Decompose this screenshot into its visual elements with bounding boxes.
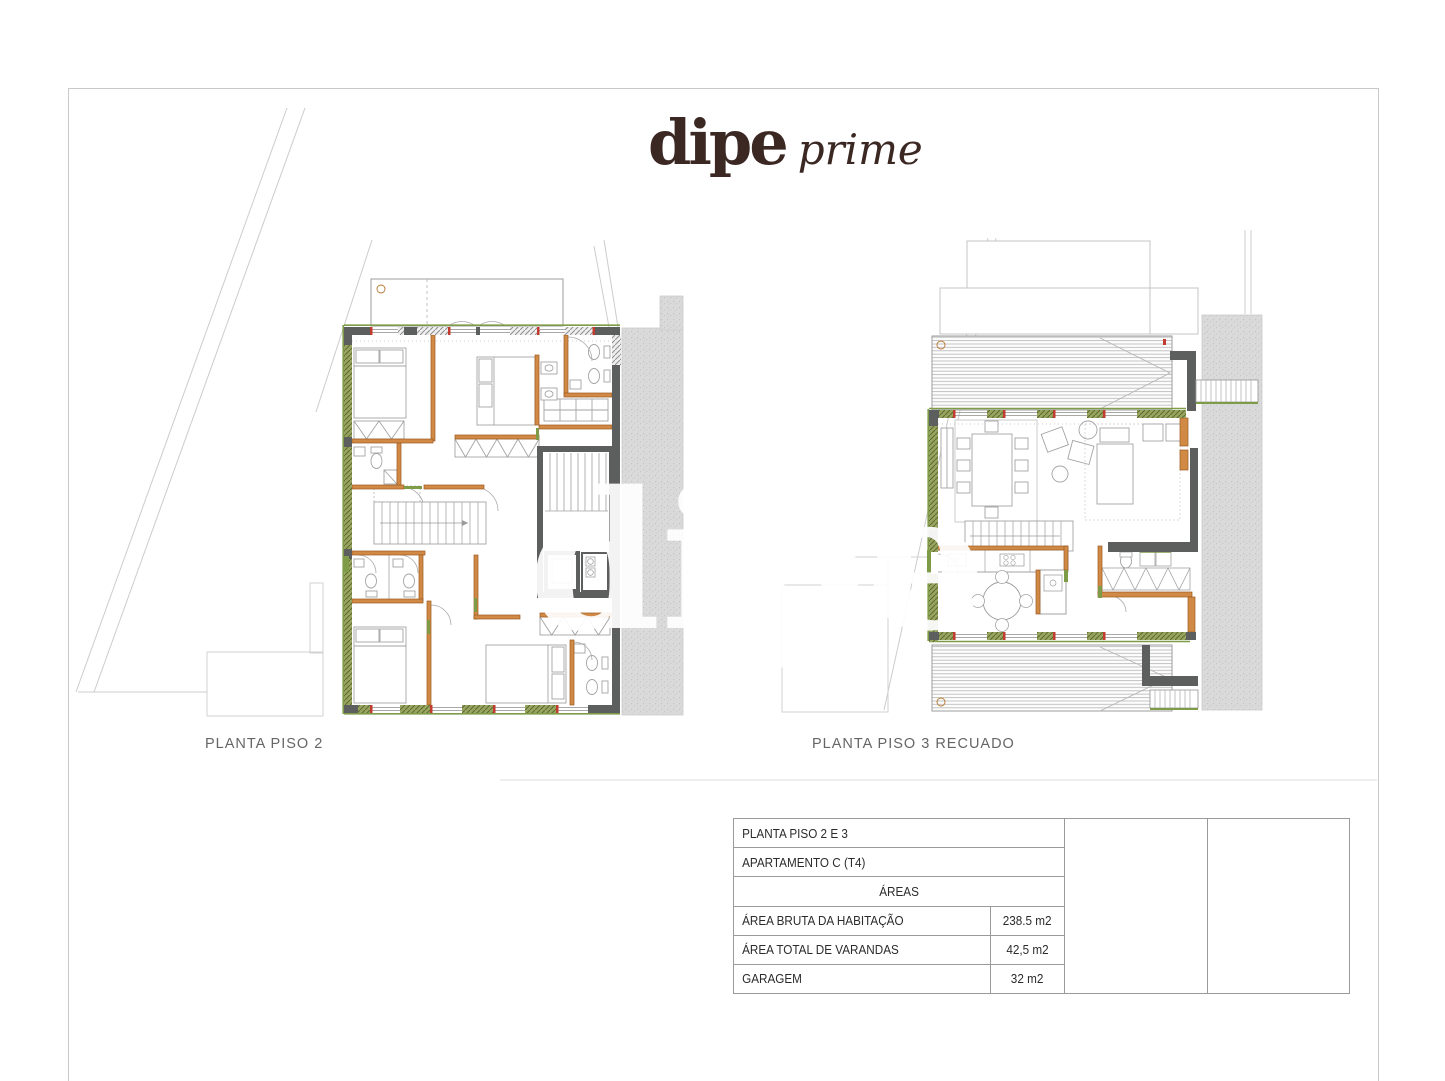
plan-label-piso-3-recuado: PLANTA PISO 3 RECUADO: [812, 736, 1015, 752]
internal-stair-piso-2: [374, 486, 486, 544]
title-block-row-plan: PLANTA PISO 2 E 3: [734, 819, 1064, 848]
title-block: PLANTA PISO 2 E 3 APARTAMENTO C (T4) ÁRE…: [733, 818, 1350, 994]
title-block-row-areas-header: ÁREAS: [734, 877, 1064, 906]
apartment-cell: APARTAMENTO C (T4): [734, 855, 865, 870]
title-block-row-balcony-area: ÁREA TOTAL DE VARANDAS 42,5 m2: [734, 936, 1064, 965]
gross-area-label: ÁREA BRUTA DA HABITAÇÃO: [734, 913, 904, 928]
plan-label-piso-2: PLANTA PISO 2: [205, 736, 323, 752]
gross-area-value: 238.5 m2: [990, 907, 1064, 935]
logo: dipe prime: [648, 112, 923, 174]
title-block-main: PLANTA PISO 2 E 3 APARTAMENTO C (T4) ÁRE…: [733, 818, 1065, 994]
title-block-empty-column-1: [1064, 818, 1208, 994]
garage-value: 32 m2: [990, 965, 1064, 993]
sidewalk-right-plan: [1202, 315, 1262, 710]
logo-suffix-text: prime: [798, 129, 923, 171]
title-block-row-apartment: APARTAMENTO C (T4): [734, 848, 1064, 877]
brand-watermark: dipe: [528, 450, 987, 673]
roof-outline: [940, 241, 1198, 334]
logo-brand-text: dipe: [648, 112, 786, 174]
title-block-row-gross-area: ÁREA BRUTA DA HABITAÇÃO 238.5 m2: [734, 907, 1064, 936]
areas-header-cell: ÁREAS: [879, 884, 919, 899]
balcony-piso-2: [371, 279, 563, 326]
garage-label: GARAGEM: [734, 971, 802, 986]
balcony-area-label: ÁREA TOTAL DE VARANDAS: [734, 942, 899, 957]
title-block-empty-column-2: [1207, 818, 1350, 994]
title-block-row-garage: GARAGEM 32 m2: [734, 965, 1064, 993]
plan-name-cell: PLANTA PISO 2 E 3: [734, 826, 848, 841]
balcony-area-value: 42,5 m2: [990, 936, 1064, 964]
